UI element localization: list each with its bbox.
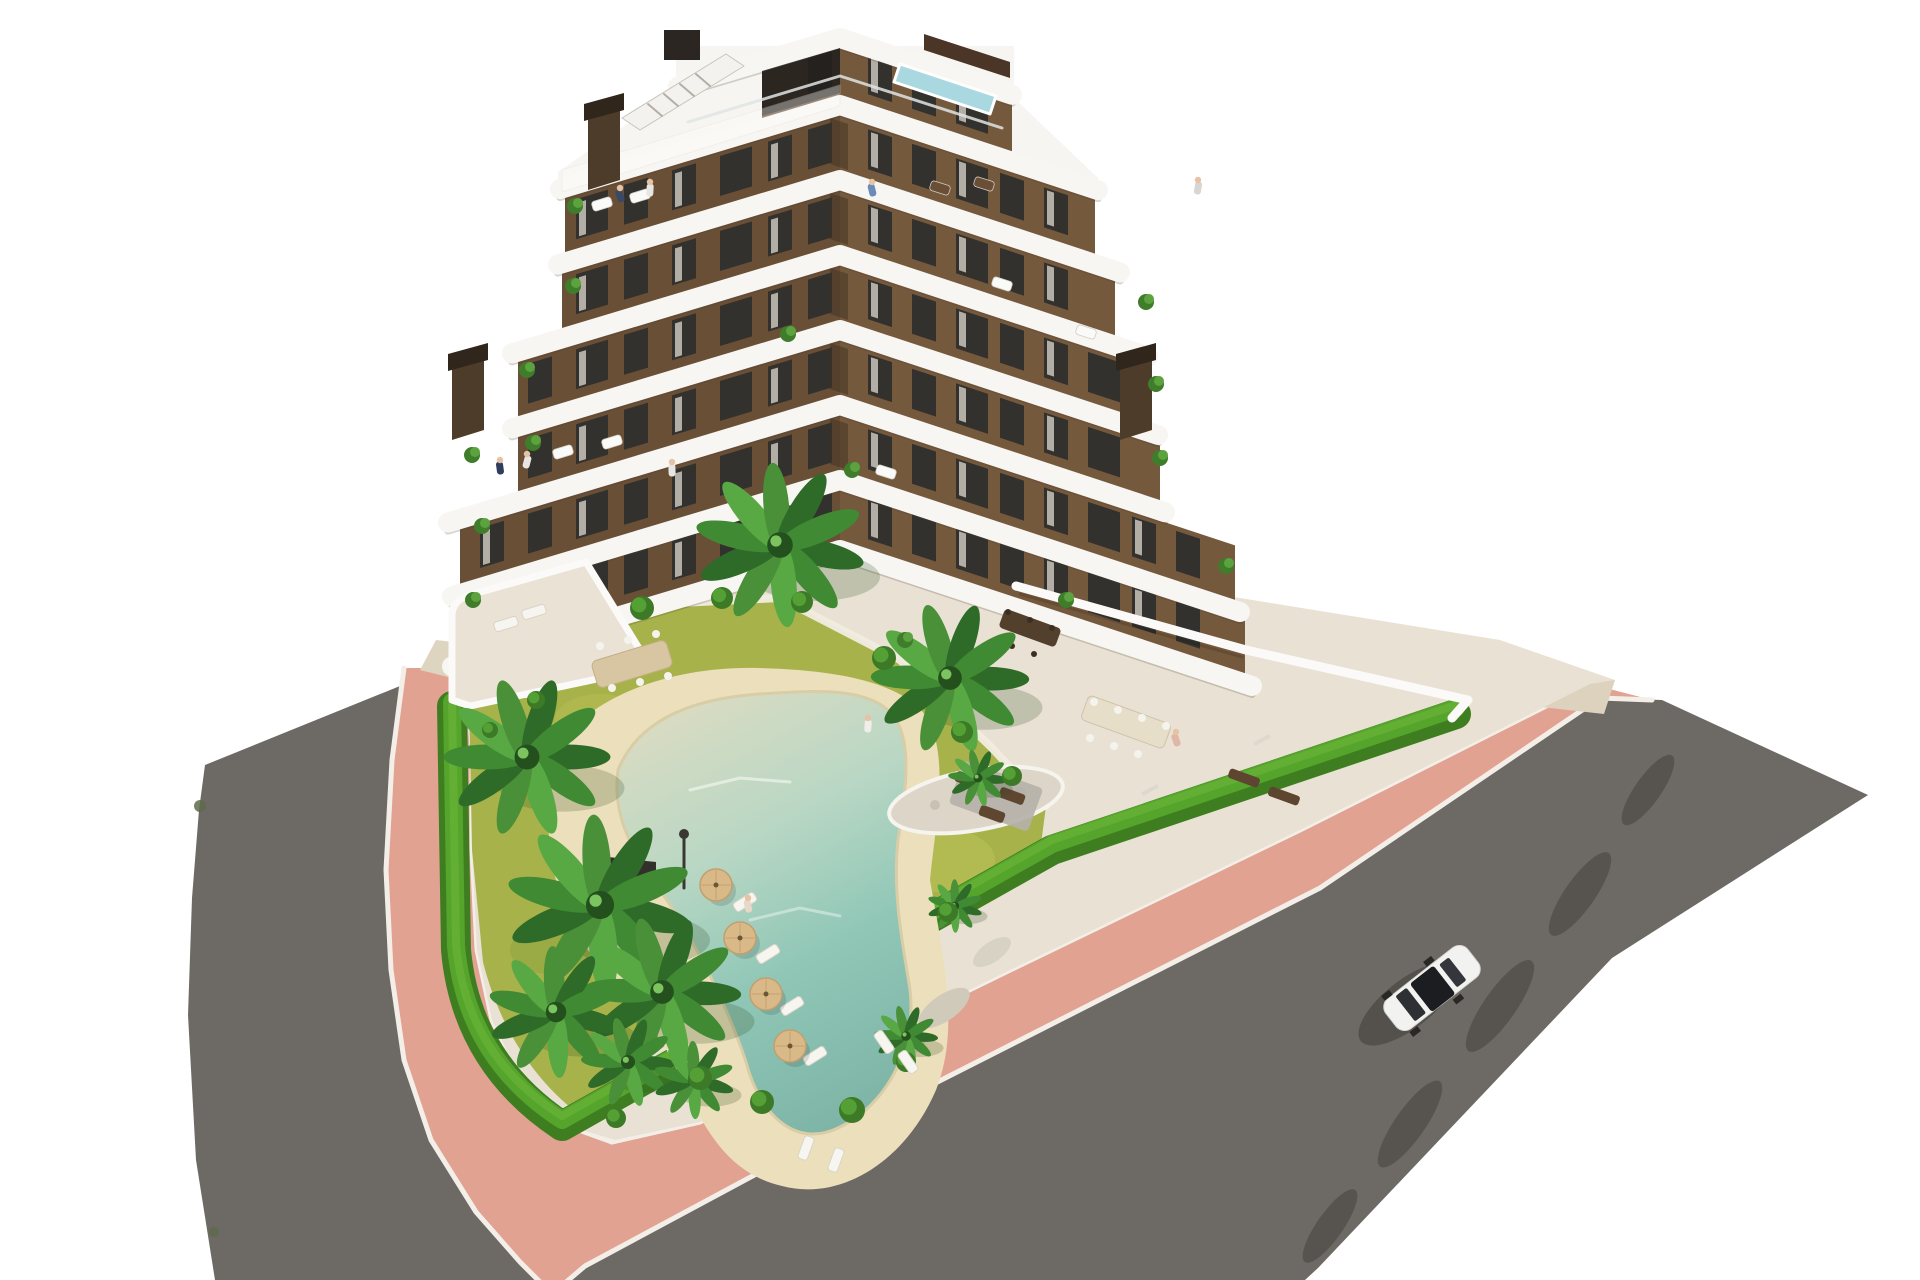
window <box>1000 173 1024 221</box>
lamp-post-head <box>679 829 689 839</box>
person-head <box>1173 729 1179 735</box>
balcony-plant-light <box>1158 450 1168 460</box>
window <box>912 219 936 267</box>
window-curtain <box>675 321 682 357</box>
balcony-plant-light <box>903 632 913 642</box>
garden-bush-light <box>792 592 806 606</box>
balcony-plant-light <box>470 447 480 457</box>
palm-crown-highlight <box>518 748 529 759</box>
window-curtain <box>579 350 586 386</box>
palm-crown <box>767 532 793 558</box>
dark-chair <box>1031 651 1037 657</box>
courtyard-chair <box>1086 734 1094 742</box>
balcony-plant-light <box>1224 558 1234 568</box>
garden-bush-light <box>607 1109 619 1121</box>
window <box>808 347 832 394</box>
garden-bush-light <box>690 1068 705 1083</box>
terrace-chair <box>636 678 644 686</box>
garden-bush-light <box>841 1099 857 1115</box>
corner-notch-shadow <box>830 268 848 320</box>
balcony-plant-light <box>786 326 796 336</box>
palm-crown-highlight <box>653 983 663 993</box>
garden-bush-light <box>952 722 966 736</box>
palm-crown-highlight <box>548 1004 557 1013</box>
terrace-chair <box>652 630 660 638</box>
courtyard-chair <box>1138 714 1146 722</box>
architectural-rendering-figure <box>0 0 1920 1280</box>
balcony-plant-light <box>480 518 490 528</box>
corner-notch-shadow <box>830 343 848 395</box>
balcony-plant-light <box>1154 376 1164 386</box>
palm-crown-highlight <box>902 1032 906 1036</box>
window-curtain <box>1047 190 1054 226</box>
terrace-chair <box>624 636 632 644</box>
palm-crown <box>974 774 983 783</box>
window <box>624 328 648 375</box>
courtyard-chair <box>1134 750 1142 758</box>
corner-notch-shadow <box>830 193 848 245</box>
window <box>808 422 832 469</box>
garden-bush-light <box>483 723 493 733</box>
window-curtain <box>675 471 682 507</box>
window <box>808 122 832 169</box>
balcony-plant-light <box>850 462 860 472</box>
person-head <box>524 451 530 457</box>
balcony-plant-light <box>525 362 535 372</box>
person-head <box>669 459 675 465</box>
person-head <box>745 895 751 901</box>
person-head <box>865 715 871 721</box>
window <box>808 197 832 244</box>
umbrella-pole <box>764 992 769 997</box>
window-curtain <box>771 143 778 179</box>
terrace-chair <box>664 672 672 680</box>
window-curtain <box>959 236 966 272</box>
window-curtain <box>1047 265 1054 301</box>
window <box>624 253 648 300</box>
courtyard-chair <box>1110 742 1118 750</box>
garden-bush-light <box>874 648 889 663</box>
terrace-chair <box>608 684 616 692</box>
person-head <box>869 179 875 185</box>
palm-crown <box>621 1055 635 1069</box>
window-curtain <box>1047 340 1054 376</box>
palm-crown-highlight <box>589 894 601 906</box>
dark-chair <box>1027 617 1033 623</box>
balcony-plant-light <box>531 435 541 445</box>
palm-crown <box>938 666 962 690</box>
window <box>528 506 552 553</box>
window-curtain <box>871 282 878 318</box>
window-curtain <box>959 161 966 197</box>
corner-notch-shadow <box>830 118 848 170</box>
garden-bush-light <box>528 692 539 703</box>
courtyard-chair <box>1114 706 1122 714</box>
window <box>1000 398 1024 446</box>
umbrella-pole <box>714 883 719 888</box>
palm-crown <box>546 1002 566 1022</box>
dark-chair <box>1005 609 1011 615</box>
window <box>624 478 648 525</box>
window-curtain <box>579 425 586 461</box>
balcony-plant-light <box>1064 592 1074 602</box>
window-curtain <box>771 218 778 254</box>
window-curtain <box>959 461 966 497</box>
palm-crown-highlight <box>770 535 781 546</box>
person-body <box>646 183 654 196</box>
window-curtain <box>959 311 966 347</box>
umbrella-pole <box>738 936 743 941</box>
stair-bulkhead <box>664 30 700 60</box>
palm-crown <box>901 1031 911 1041</box>
window-curtain <box>871 432 878 468</box>
umbrella-pole <box>788 1044 793 1049</box>
courtyard-chair <box>1162 722 1170 730</box>
window-curtain <box>959 531 966 567</box>
balcony-plant-light <box>471 592 481 602</box>
window-curtain <box>871 207 878 243</box>
scene-svg <box>0 0 1920 1280</box>
window-curtain <box>1047 415 1054 451</box>
palm-crown-highlight <box>623 1057 629 1063</box>
garden-bush-light <box>939 903 951 915</box>
window-curtain <box>1135 519 1142 555</box>
garden-bush-light <box>632 598 647 613</box>
person-head <box>1195 177 1201 183</box>
person-body <box>668 463 675 476</box>
roadside-tuft <box>209 1227 219 1237</box>
window-curtain <box>675 396 682 432</box>
window <box>912 444 936 492</box>
window-curtain <box>771 368 778 404</box>
window <box>1000 473 1024 521</box>
window-curtain <box>483 529 490 565</box>
palm-crown <box>650 980 674 1004</box>
window-curtain <box>871 132 878 168</box>
garden-bush-light <box>752 1092 767 1107</box>
person-head <box>497 457 503 463</box>
window <box>912 294 936 342</box>
island-pebble <box>930 800 940 810</box>
palm-crown <box>586 891 614 919</box>
window <box>912 369 936 417</box>
window-curtain <box>675 246 682 282</box>
palm-crown <box>515 745 540 770</box>
window-curtain <box>579 500 586 536</box>
palm-crown-highlight <box>941 669 951 679</box>
garden-bush-light <box>712 588 726 602</box>
balcony-plant-light <box>571 278 581 288</box>
roadside-tuft <box>194 800 206 812</box>
person-head <box>647 179 653 185</box>
garden-bush-light <box>1003 767 1015 779</box>
balcony-plant-light <box>573 198 583 208</box>
corner-notch-shadow <box>830 418 848 470</box>
courtyard-chair <box>1090 698 1098 706</box>
window-curtain <box>871 357 878 393</box>
window-curtain <box>771 293 778 329</box>
window-curtain <box>675 171 682 207</box>
window <box>1176 531 1200 579</box>
window <box>808 272 832 319</box>
person-head <box>617 185 623 191</box>
window-curtain <box>675 541 682 577</box>
window-curtain <box>1047 490 1054 526</box>
terrace-chair <box>596 642 604 650</box>
window <box>1000 323 1024 371</box>
window-curtain <box>871 502 878 538</box>
balcony-plant-light <box>1144 294 1154 304</box>
dark-chair <box>1049 625 1055 631</box>
window-curtain <box>959 386 966 422</box>
window <box>624 403 648 450</box>
person-body <box>864 719 872 732</box>
palm-crown-highlight <box>975 775 979 779</box>
